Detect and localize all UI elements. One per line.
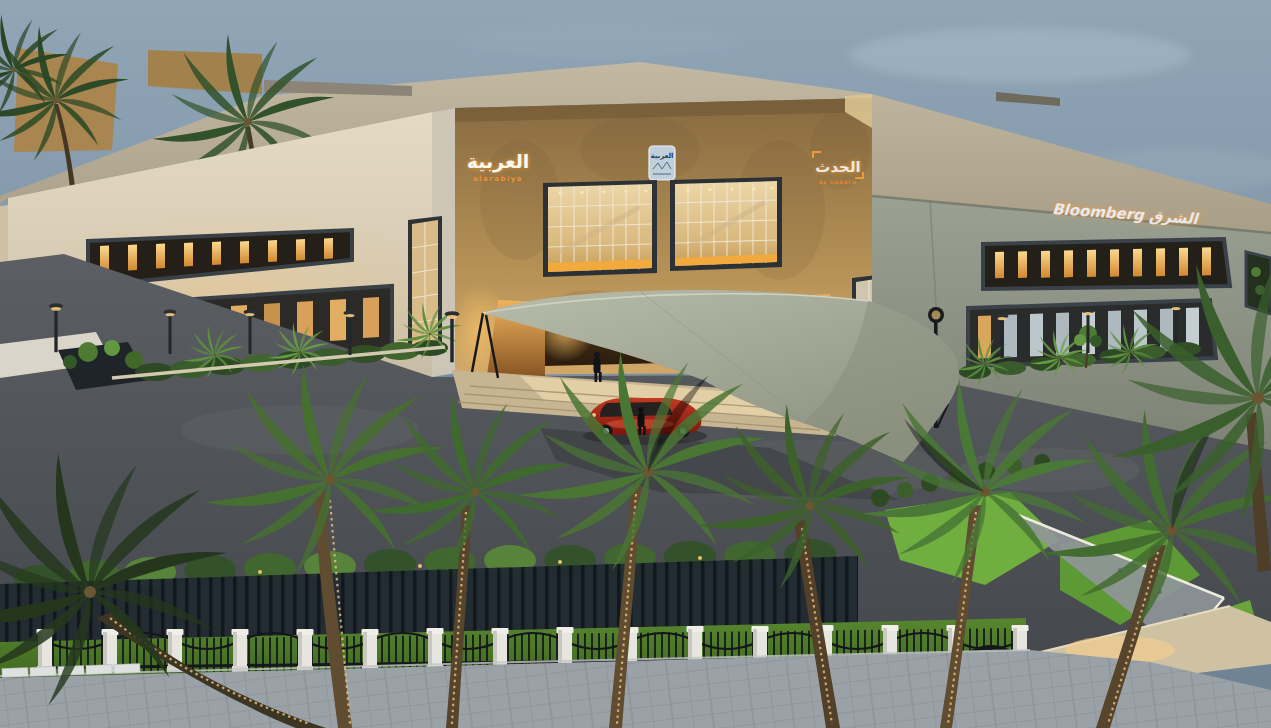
alarabiya-logo-badge: العربية (649, 146, 675, 180)
window-slot (1133, 249, 1142, 277)
window-slot (1156, 248, 1165, 276)
window-slot (995, 252, 1004, 279)
window-slot (1202, 247, 1211, 275)
cloud (460, 22, 740, 58)
window-slot (1179, 248, 1188, 276)
window-slot (212, 242, 221, 265)
shrub (104, 340, 120, 356)
window-slot (240, 241, 249, 264)
alarabiya-sign: العربية العربية alarabiya (467, 150, 530, 183)
window-slot (1041, 251, 1050, 278)
fence-pillar (232, 629, 249, 672)
asphalt-patch (180, 405, 420, 455)
curtain-wall-window (543, 180, 657, 277)
window-band-upper-right (983, 239, 1230, 289)
shrub (63, 355, 77, 369)
window (1004, 315, 1017, 358)
window-slot (128, 245, 137, 271)
badge-arabic: العربية (650, 152, 673, 160)
window-slot (1110, 249, 1119, 277)
alhadath-arabic: الحدث (815, 158, 860, 176)
architectural-rendering: العربية العربية alarabiya العربية الحدث … (0, 0, 1271, 728)
window-slot (1018, 251, 1027, 278)
window-slot (296, 239, 305, 261)
fence-pillar (297, 629, 314, 672)
cloud (850, 28, 1190, 82)
window (1030, 314, 1043, 357)
alhadath-latin: AL HADATH (819, 180, 857, 185)
window (363, 297, 379, 338)
window-slot (1087, 250, 1096, 277)
curtain-wall-window (670, 177, 782, 271)
window-slot (156, 244, 165, 269)
window (330, 299, 346, 341)
window-slot (324, 238, 333, 259)
window-slot (268, 240, 277, 262)
window-slot (1064, 250, 1073, 277)
window-slot (184, 243, 193, 267)
alarabiya-latin: alarabiya (473, 175, 523, 183)
shrub (78, 342, 98, 362)
alarabiya-arabic: العربية (467, 150, 530, 173)
